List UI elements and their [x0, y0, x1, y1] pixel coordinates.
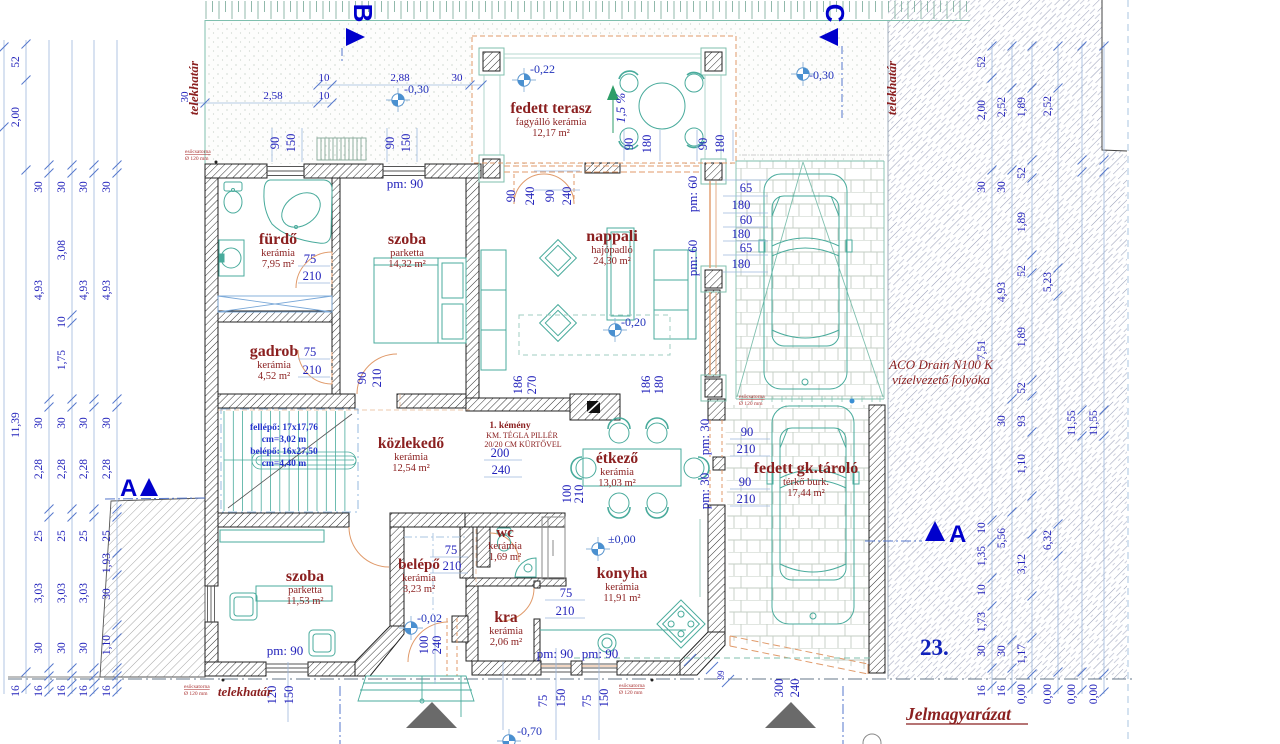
- svg-text:52: 52: [976, 56, 988, 68]
- svg-text:5,23: 5,23: [1042, 272, 1054, 292]
- svg-text:1,89: 1,89: [1016, 212, 1028, 232]
- svg-text:esőcsatorna: esőcsatorna: [619, 683, 645, 689]
- svg-text:3,03: 3,03: [78, 583, 90, 603]
- svg-text:fagyálló kerámia: fagyálló kerámia: [516, 117, 587, 128]
- svg-text:90: 90: [739, 475, 752, 489]
- svg-text:12,54 m²: 12,54 m²: [392, 463, 430, 474]
- svg-text:16: 16: [976, 685, 988, 697]
- svg-text:300: 300: [772, 679, 786, 698]
- svg-text:11,39: 11,39: [10, 412, 22, 438]
- svg-text:75: 75: [560, 586, 573, 600]
- svg-text:210: 210: [370, 369, 384, 388]
- svg-text:4,93: 4,93: [33, 280, 45, 300]
- svg-text:nappali: nappali: [586, 228, 638, 245]
- svg-text:fedett terasz: fedett terasz: [510, 100, 591, 117]
- svg-text:14,32 m²: 14,32 m²: [388, 259, 426, 270]
- svg-text:esőcsatorna: esőcsatorna: [185, 149, 211, 155]
- svg-text:esőcsatorna: esőcsatorna: [739, 394, 765, 400]
- svg-text:20/20 CM KÜRTŐVEL: 20/20 CM KÜRTŐVEL: [484, 439, 561, 449]
- svg-text:-0,20: -0,20: [621, 315, 646, 329]
- svg-text:210: 210: [303, 269, 322, 283]
- svg-text:150: 150: [284, 134, 298, 153]
- svg-text:210: 210: [443, 559, 462, 573]
- svg-text:16: 16: [996, 685, 1008, 697]
- svg-text:kerámia: kerámia: [261, 248, 295, 259]
- svg-text:210: 210: [737, 442, 756, 456]
- svg-text:közlekedő: közlekedő: [378, 435, 445, 452]
- svg-text:30: 30: [33, 417, 45, 429]
- svg-text:16: 16: [33, 685, 45, 697]
- svg-text:1,10: 1,10: [101, 635, 113, 655]
- svg-text:szoba: szoba: [388, 231, 426, 248]
- svg-text:210: 210: [303, 363, 322, 377]
- svg-text:4,93: 4,93: [101, 280, 113, 300]
- svg-text:2,00: 2,00: [976, 100, 988, 120]
- svg-text:2,28: 2,28: [78, 459, 90, 479]
- svg-text:12,17 m²: 12,17 m²: [532, 128, 570, 139]
- svg-text:kerámia: kerámia: [605, 582, 639, 593]
- svg-text:210: 210: [572, 485, 586, 504]
- svg-text:0,00: 0,00: [1088, 684, 1100, 704]
- svg-text:52: 52: [1016, 265, 1028, 277]
- svg-text:2,28: 2,28: [101, 459, 113, 479]
- svg-text:kerámia: kerámia: [488, 541, 522, 552]
- svg-text:11,55: 11,55: [1066, 410, 1078, 436]
- svg-text:75: 75: [304, 345, 317, 359]
- svg-text:1,75: 1,75: [56, 350, 68, 370]
- svg-text:52: 52: [10, 56, 22, 68]
- svg-text:16: 16: [78, 685, 90, 697]
- svg-text:pm: 90: pm: 90: [387, 176, 423, 191]
- svg-text:pm: 60: pm: 60: [685, 240, 700, 276]
- svg-text:240: 240: [788, 679, 802, 698]
- svg-text:ACO Drain N100 K: ACO Drain N100 K: [888, 357, 994, 372]
- svg-text:1,73: 1,73: [976, 612, 988, 632]
- svg-text:10: 10: [56, 316, 68, 328]
- svg-text:30: 30: [56, 417, 68, 429]
- svg-text:fedett gk.tároló: fedett gk.tároló: [754, 460, 859, 477]
- svg-text:1,93: 1,93: [101, 553, 113, 573]
- svg-text:10: 10: [976, 522, 988, 534]
- svg-text:-0,70: -0,70: [517, 724, 542, 738]
- svg-text:gadrob: gadrob: [250, 343, 299, 360]
- svg-text:210: 210: [556, 604, 575, 618]
- svg-text:16: 16: [101, 685, 113, 697]
- svg-text:kerámia: kerámia: [489, 626, 523, 637]
- svg-text:10: 10: [976, 584, 988, 596]
- svg-text:23.: 23.: [920, 635, 949, 660]
- svg-text:90: 90: [504, 190, 518, 203]
- svg-text:1,10: 1,10: [1016, 454, 1028, 474]
- svg-text:-0,30: -0,30: [809, 68, 834, 82]
- svg-text:1. kémény: 1. kémény: [489, 421, 530, 431]
- svg-text:30: 30: [976, 181, 988, 193]
- svg-text:belépő: 16x27,50: belépő: 16x27,50: [250, 447, 318, 457]
- svg-text:75: 75: [536, 695, 550, 708]
- svg-text:30: 30: [452, 72, 464, 84]
- svg-text:szoba: szoba: [286, 568, 324, 585]
- svg-text:210: 210: [737, 492, 756, 506]
- svg-text:180: 180: [713, 135, 727, 154]
- svg-text:25: 25: [33, 530, 45, 542]
- svg-text:3,03: 3,03: [33, 583, 45, 603]
- svg-text:1,35: 1,35: [976, 546, 988, 566]
- svg-text:30: 30: [56, 642, 68, 654]
- svg-text:fellépő: 17x17,76: fellépő: 17x17,76: [250, 423, 318, 433]
- svg-text:telekhatár: telekhatár: [218, 684, 273, 699]
- svg-text:Ø 120 mm: Ø 120 mm: [184, 691, 208, 697]
- svg-text:180: 180: [652, 376, 666, 395]
- svg-text:10: 10: [319, 72, 331, 84]
- svg-text:esőcsatorna: esőcsatorna: [184, 684, 210, 690]
- svg-text:C: C: [820, 4, 850, 23]
- svg-text:wc: wc: [496, 525, 514, 541]
- svg-text:1,5 %: 1,5 %: [613, 93, 628, 124]
- svg-text:75: 75: [580, 695, 594, 708]
- svg-text:kra: kra: [494, 609, 518, 626]
- svg-text:100: 100: [417, 636, 431, 655]
- svg-text:180: 180: [732, 198, 751, 212]
- svg-text:17,44 m²: 17,44 m²: [787, 488, 825, 499]
- svg-text:A: A: [120, 475, 137, 502]
- svg-text:0,00: 0,00: [1042, 684, 1054, 704]
- svg-text:1,69 m²: 1,69 m²: [489, 552, 521, 563]
- svg-text:30: 30: [78, 181, 90, 193]
- svg-text:kerámia: kerámia: [600, 467, 634, 478]
- svg-text:kerámia: kerámia: [257, 360, 291, 371]
- svg-text:pm: 60: pm: 60: [685, 176, 700, 212]
- svg-text:60: 60: [740, 213, 753, 227]
- svg-text:30: 30: [33, 181, 45, 193]
- svg-text:240: 240: [492, 463, 511, 477]
- svg-text:telekhatár: telekhatár: [884, 60, 899, 115]
- svg-text:Ø 120 mm: Ø 120 mm: [619, 690, 643, 696]
- svg-text:2,28: 2,28: [33, 459, 45, 479]
- svg-text:pm: 90: pm: 90: [267, 643, 303, 658]
- svg-text:pm: 30: pm: 30: [697, 473, 712, 509]
- svg-text:3,23 m²: 3,23 m²: [403, 584, 435, 595]
- svg-text:30: 30: [101, 417, 113, 429]
- svg-text:150: 150: [399, 134, 413, 153]
- svg-text:30: 30: [101, 588, 113, 600]
- svg-text:KM. TÉGLA PILLÉR: KM. TÉGLA PILLÉR: [486, 430, 558, 440]
- svg-text:65: 65: [740, 241, 753, 255]
- svg-text:fürdő: fürdő: [259, 231, 297, 248]
- svg-text:52: 52: [1016, 382, 1028, 394]
- svg-text:16: 16: [10, 685, 22, 697]
- svg-text:A: A: [949, 521, 966, 548]
- svg-text:180: 180: [640, 135, 654, 154]
- svg-text:30: 30: [101, 181, 113, 193]
- svg-text:5,56: 5,56: [996, 528, 1008, 548]
- svg-text:240: 240: [430, 636, 444, 655]
- svg-text:-0,30: -0,30: [404, 82, 429, 96]
- svg-text:kerámia: kerámia: [394, 452, 428, 463]
- svg-text:10: 10: [319, 90, 331, 102]
- svg-text:0,00: 0,00: [1016, 684, 1028, 704]
- svg-text:2,28: 2,28: [56, 459, 68, 479]
- svg-text:30: 30: [996, 415, 1008, 427]
- svg-text:4,52 m²: 4,52 m²: [258, 371, 290, 382]
- svg-text:30: 30: [976, 645, 988, 657]
- svg-text:75: 75: [304, 252, 317, 266]
- svg-text:99: 99: [716, 670, 726, 680]
- svg-text:B: B: [348, 4, 378, 23]
- svg-text:telekhatár: telekhatár: [186, 60, 201, 115]
- svg-text:parketta: parketta: [390, 248, 424, 259]
- svg-text:25: 25: [101, 530, 113, 542]
- svg-text:kerámia: kerámia: [402, 573, 436, 584]
- svg-text:90: 90: [543, 190, 557, 203]
- svg-text:térkő burk.: térkő burk.: [783, 477, 829, 488]
- svg-text:30: 30: [56, 181, 68, 193]
- svg-text:-0,02: -0,02: [417, 611, 442, 625]
- svg-text:pm: 90: pm: 90: [537, 646, 573, 661]
- svg-text:2,58: 2,58: [263, 90, 283, 102]
- svg-text:vízelvezető folyóka: vízelvezető folyóka: [892, 372, 990, 387]
- svg-text:pm: 90: pm: 90: [582, 646, 618, 661]
- svg-text:90: 90: [696, 138, 710, 151]
- svg-text:30: 30: [33, 642, 45, 654]
- svg-text:4,93: 4,93: [996, 282, 1008, 302]
- svg-text:240: 240: [523, 187, 537, 206]
- svg-text:11,91 m²: 11,91 m²: [603, 593, 640, 604]
- svg-text:6,32: 6,32: [1042, 530, 1054, 550]
- svg-text:93: 93: [1016, 415, 1028, 427]
- svg-text:90: 90: [355, 372, 369, 385]
- svg-text:150: 150: [597, 689, 611, 708]
- svg-text:90: 90: [741, 425, 754, 439]
- svg-text:pm: 30: pm: 30: [697, 419, 712, 455]
- svg-text:konyha: konyha: [597, 565, 648, 582]
- svg-text:belépő: belépő: [398, 557, 440, 573]
- svg-text:30: 30: [78, 642, 90, 654]
- svg-text:cm=3,02 m: cm=3,02 m: [262, 435, 307, 445]
- svg-text:0,00: 0,00: [1066, 684, 1078, 704]
- svg-text:186: 186: [639, 376, 653, 395]
- svg-text:7,95 m²: 7,95 m²: [262, 259, 294, 270]
- svg-text:-0,22: -0,22: [530, 62, 555, 76]
- svg-text:3,12: 3,12: [1016, 554, 1028, 574]
- svg-text:2,00: 2,00: [10, 107, 22, 127]
- svg-text:1,89: 1,89: [1016, 327, 1028, 347]
- svg-text:hajópadló: hajópadló: [591, 245, 632, 256]
- svg-text:75: 75: [445, 543, 458, 557]
- svg-text:11,53 m²: 11,53 m²: [286, 596, 323, 607]
- svg-text:2,52: 2,52: [996, 97, 1008, 117]
- svg-text:parketta: parketta: [288, 585, 322, 596]
- svg-text:4,93: 4,93: [78, 280, 90, 300]
- svg-text:150: 150: [282, 686, 296, 705]
- svg-text:Ø 120 mm: Ø 120 mm: [185, 156, 209, 162]
- svg-text:2,52: 2,52: [1042, 96, 1054, 116]
- svg-text:25: 25: [78, 530, 90, 542]
- svg-text:90: 90: [383, 137, 397, 150]
- svg-text:52: 52: [1016, 167, 1028, 179]
- svg-text:13,03 m²: 13,03 m²: [598, 478, 636, 489]
- svg-text:11,55: 11,55: [1088, 410, 1100, 436]
- svg-text:1,89: 1,89: [1016, 97, 1028, 117]
- svg-text:±0,00: ±0,00: [608, 532, 636, 546]
- svg-text:30: 30: [996, 645, 1008, 657]
- svg-text:3,08: 3,08: [56, 240, 68, 260]
- svg-text:180: 180: [732, 227, 751, 241]
- svg-text:cm=4,40 m: cm=4,40 m: [262, 459, 307, 469]
- svg-text:16: 16: [56, 685, 68, 697]
- svg-text:Jelmagyarázat: Jelmagyarázat: [905, 704, 1012, 724]
- svg-text:270: 270: [525, 376, 539, 395]
- svg-text:30: 30: [996, 181, 1008, 193]
- svg-text:240: 240: [560, 187, 574, 206]
- svg-text:186: 186: [511, 376, 525, 395]
- svg-text:90: 90: [268, 137, 282, 150]
- svg-text:30: 30: [78, 417, 90, 429]
- svg-text:24,30 m²: 24,30 m²: [593, 256, 631, 267]
- svg-text:1,17: 1,17: [1016, 644, 1028, 664]
- svg-text:65: 65: [740, 181, 753, 195]
- svg-text:90: 90: [622, 138, 636, 151]
- svg-text:150: 150: [554, 689, 568, 708]
- svg-text:Ø 120 mm: Ø 120 mm: [739, 401, 763, 407]
- svg-text:25: 25: [56, 530, 68, 542]
- svg-text:étkező: étkező: [596, 450, 638, 467]
- svg-text:180: 180: [732, 257, 751, 271]
- svg-text:3,03: 3,03: [56, 583, 68, 603]
- svg-text:2,06 m²: 2,06 m²: [490, 637, 522, 648]
